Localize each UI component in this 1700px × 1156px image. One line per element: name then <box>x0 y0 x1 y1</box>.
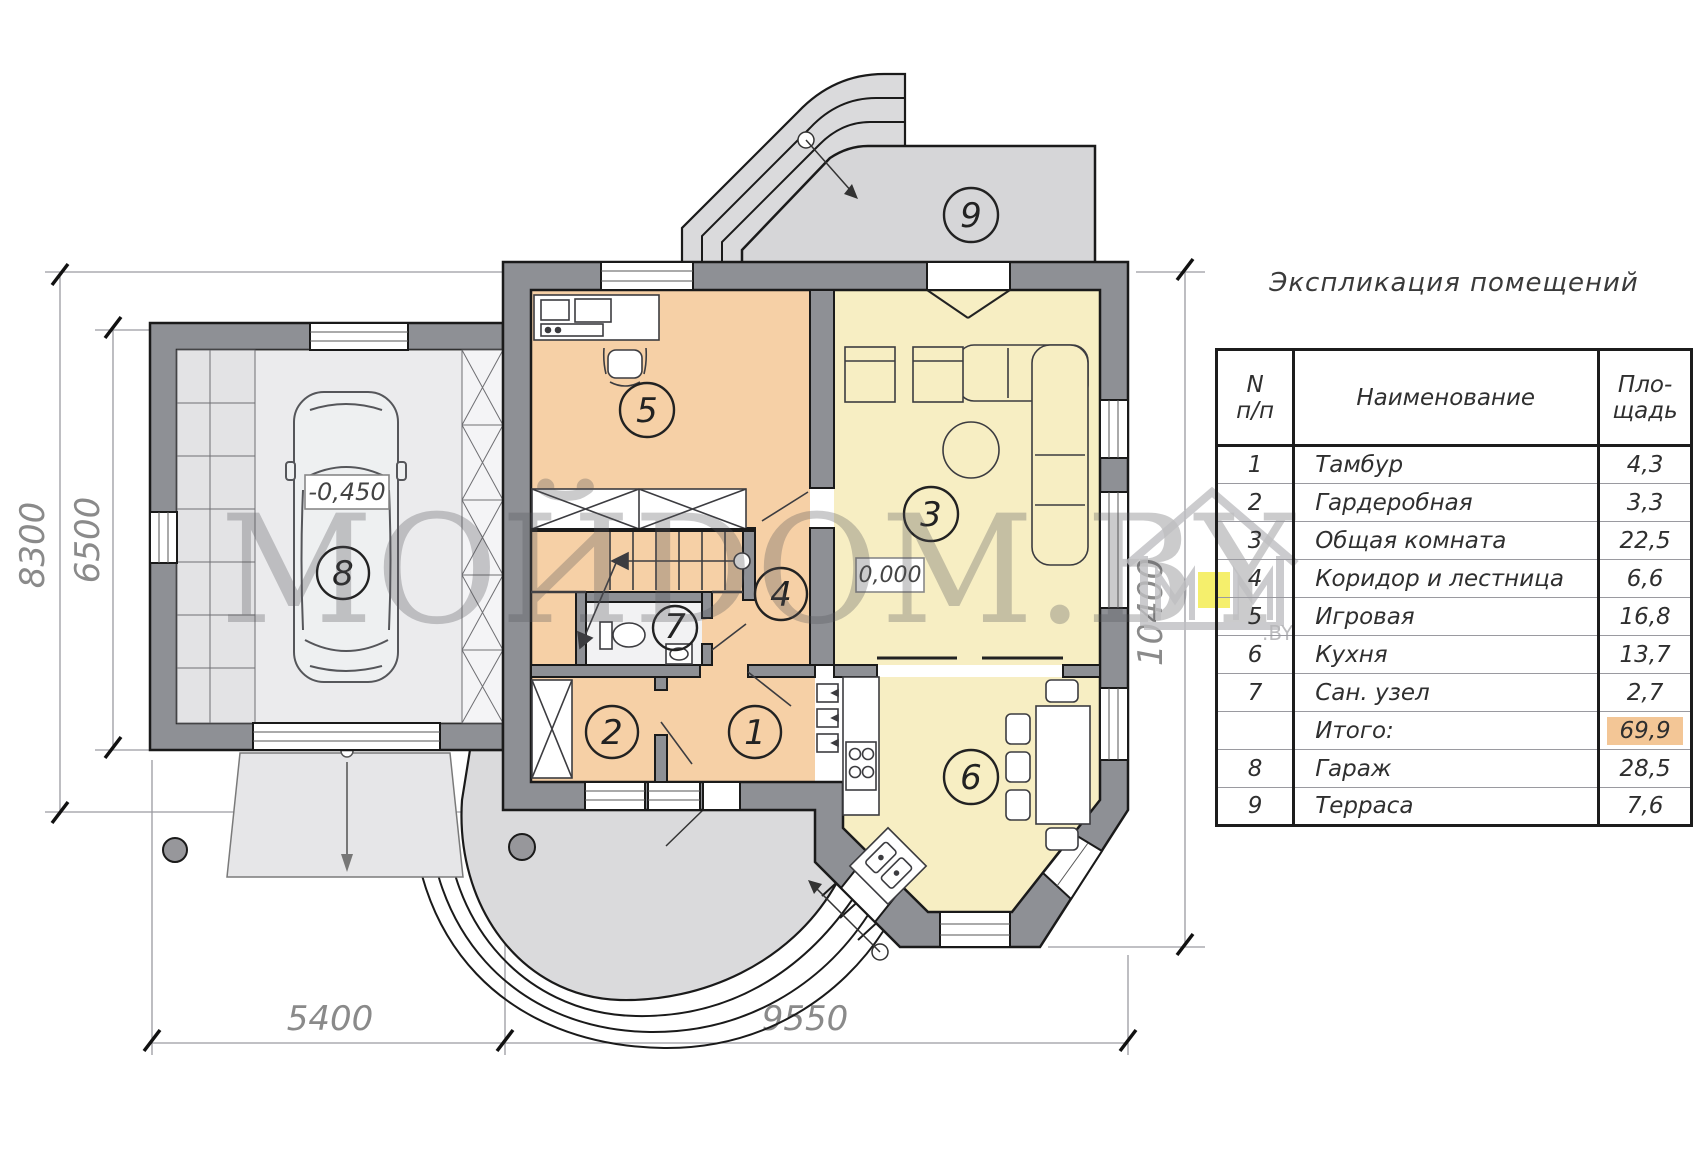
site-marker <box>163 838 187 862</box>
legend-table: N п/п Наименование Пло- щадь 1 Тамбур 4,… <box>1215 348 1693 827</box>
legend-header-area-line2: щадь <box>1601 398 1689 424</box>
row-area: 28,5 <box>1599 750 1692 788</box>
row-name: Кухня <box>1294 636 1599 674</box>
row-area: 4,3 <box>1599 446 1692 484</box>
row-name: Сан. узел <box>1294 674 1599 712</box>
row-name: Гараж <box>1294 750 1599 788</box>
floor-plan-sheet: 8300 6500 5400 9550 10400 <box>0 0 1700 1156</box>
closet-icon <box>532 680 572 778</box>
row-name: Гардеробная <box>1294 484 1599 522</box>
table-row: 7 Сан. узел 2,7 <box>1217 674 1692 712</box>
table-row: 5 Игровая 16,8 <box>1217 598 1692 636</box>
terrace-door <box>927 262 1010 290</box>
row-area: 16,8 <box>1599 598 1692 636</box>
row-name: Игровая <box>1294 598 1599 636</box>
room-number-1: 1 <box>744 713 766 753</box>
watermark-text: МОЙDOM.BY <box>220 478 1297 658</box>
row-name: Терраса <box>1294 788 1599 826</box>
room-number-6: 6 <box>960 758 982 798</box>
table-row: 4 Коридор и лестница 6,6 <box>1217 560 1692 598</box>
row-area-total: 69,9 <box>1599 712 1692 750</box>
table-row: 2 Гардеробная 3,3 <box>1217 484 1692 522</box>
row-n: 3 <box>1217 522 1294 560</box>
row-name: Тамбур <box>1294 446 1599 484</box>
dim-left-inner: 6500 <box>68 497 108 584</box>
table-row: 3 Общая комната 22,5 <box>1217 522 1692 560</box>
table-row-total: Итого: 69,9 <box>1217 712 1692 750</box>
row-n: 7 <box>1217 674 1294 712</box>
table-row: 6 Кухня 13,7 <box>1217 636 1692 674</box>
row-area: 6,6 <box>1599 560 1692 598</box>
room-number-9: 9 <box>960 196 982 236</box>
row-area: 7,6 <box>1599 788 1692 826</box>
legend-header-area-line1: Пло- <box>1601 372 1689 398</box>
row-name: Общая комната <box>1294 522 1599 560</box>
row-n: 9 <box>1217 788 1294 826</box>
watermark: МОЙDOM.BY .BY <box>220 478 1297 658</box>
total-area-value: 69,9 <box>1607 717 1682 745</box>
legend-header-row: N п/п Наименование Пло- щадь <box>1217 350 1692 446</box>
row-n: 5 <box>1217 598 1294 636</box>
terrace <box>682 74 1095 265</box>
row-area: 22,5 <box>1599 522 1692 560</box>
row-n <box>1217 712 1294 750</box>
row-area: 2,7 <box>1599 674 1692 712</box>
porch-column <box>509 834 535 860</box>
row-area: 3,3 <box>1599 484 1692 522</box>
dim-bottom-right: 9550 <box>762 999 849 1039</box>
dim-bottom-left: 5400 <box>287 999 374 1039</box>
entrance-door <box>703 782 740 810</box>
legend-header-n: N п/п <box>1217 350 1294 446</box>
dim-left-outer: 8300 <box>13 502 53 589</box>
room-number-5: 5 <box>636 391 658 431</box>
row-n: 6 <box>1217 636 1294 674</box>
table-row: 1 Тамбур 4,3 <box>1217 446 1692 484</box>
row-n: 8 <box>1217 750 1294 788</box>
row-name: Коридор и лестница <box>1294 560 1599 598</box>
legend-title: Экспликация помещений <box>1215 268 1693 298</box>
legend-header-n-line1: N <box>1219 372 1291 398</box>
legend-header-name: Наименование <box>1294 350 1599 446</box>
driveway <box>163 745 463 877</box>
row-n: 2 <box>1217 484 1294 522</box>
row-n: 4 <box>1217 560 1294 598</box>
row-area: 13,7 <box>1599 636 1692 674</box>
legend-header-n-line2: п/п <box>1219 398 1291 424</box>
legend-header-area: Пло- щадь <box>1599 350 1692 446</box>
table-row: 9 Терраса 7,6 <box>1217 788 1692 826</box>
table-row: 8 Гараж 28,5 <box>1217 750 1692 788</box>
row-name: Итого: <box>1294 712 1599 750</box>
row-n: 1 <box>1217 446 1294 484</box>
desk-icon <box>534 295 659 340</box>
room-number-2: 2 <box>601 713 623 753</box>
